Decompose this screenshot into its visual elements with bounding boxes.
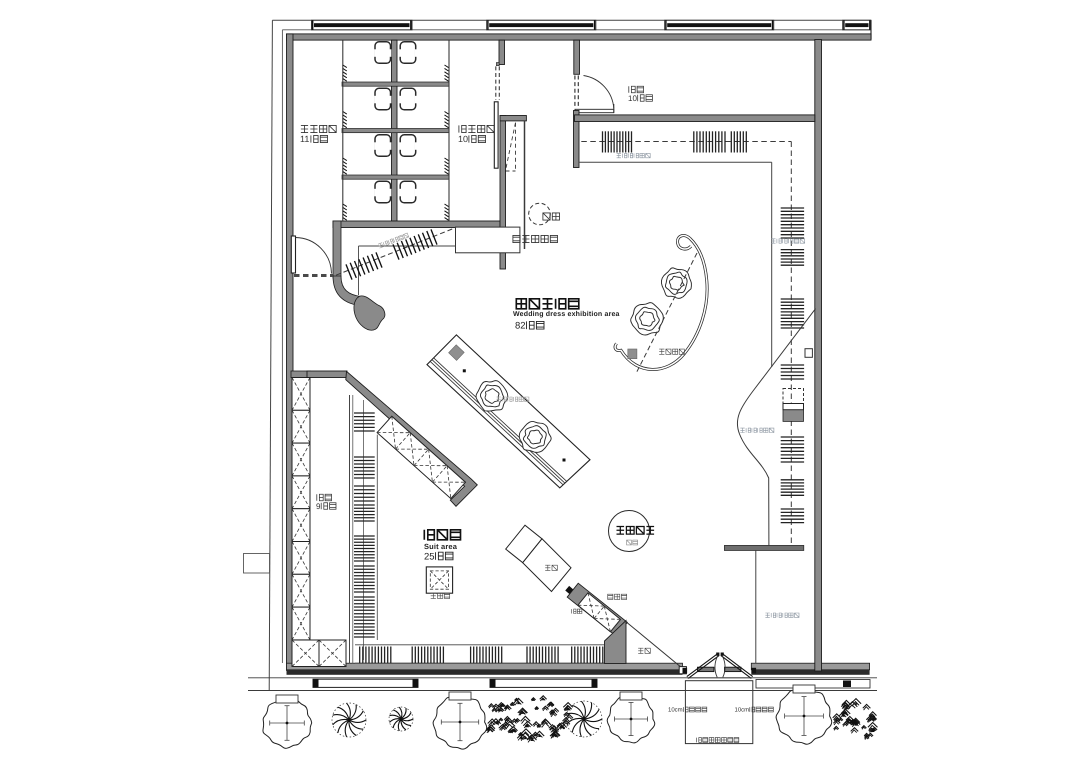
svg-text:10: 10 bbox=[628, 94, 637, 103]
svg-text:82: 82 bbox=[515, 321, 526, 332]
svg-text:Suit area: Suit area bbox=[424, 542, 458, 551]
svg-text:Wedding dress exhibition area: Wedding dress exhibition area bbox=[513, 310, 620, 318]
svg-text:10cm: 10cm bbox=[668, 707, 683, 714]
svg-text:11: 11 bbox=[300, 134, 309, 144]
svg-text:25: 25 bbox=[424, 551, 435, 562]
svg-text:9: 9 bbox=[316, 502, 321, 511]
svg-text:10cm: 10cm bbox=[735, 707, 750, 714]
svg-text:10: 10 bbox=[458, 134, 468, 144]
